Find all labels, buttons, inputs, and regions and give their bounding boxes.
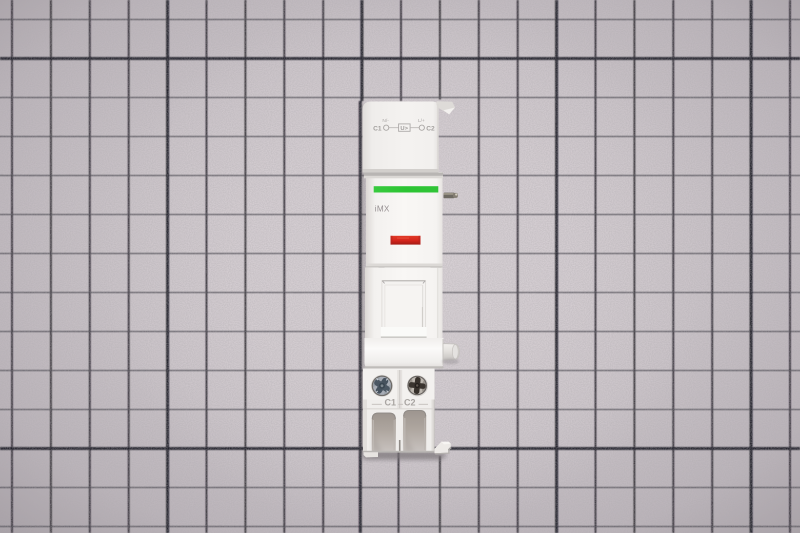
svg-text:C1: C1 [373, 125, 382, 132]
svg-text:L/+: L/+ [418, 118, 425, 124]
svg-text:C1: C1 [385, 398, 397, 408]
svg-text:C2: C2 [426, 125, 435, 132]
svg-text:N/-: N/- [382, 118, 389, 124]
svg-text:iMX: iMX [375, 204, 390, 213]
svg-text:C2: C2 [404, 398, 416, 408]
svg-text:U>: U> [400, 126, 408, 132]
